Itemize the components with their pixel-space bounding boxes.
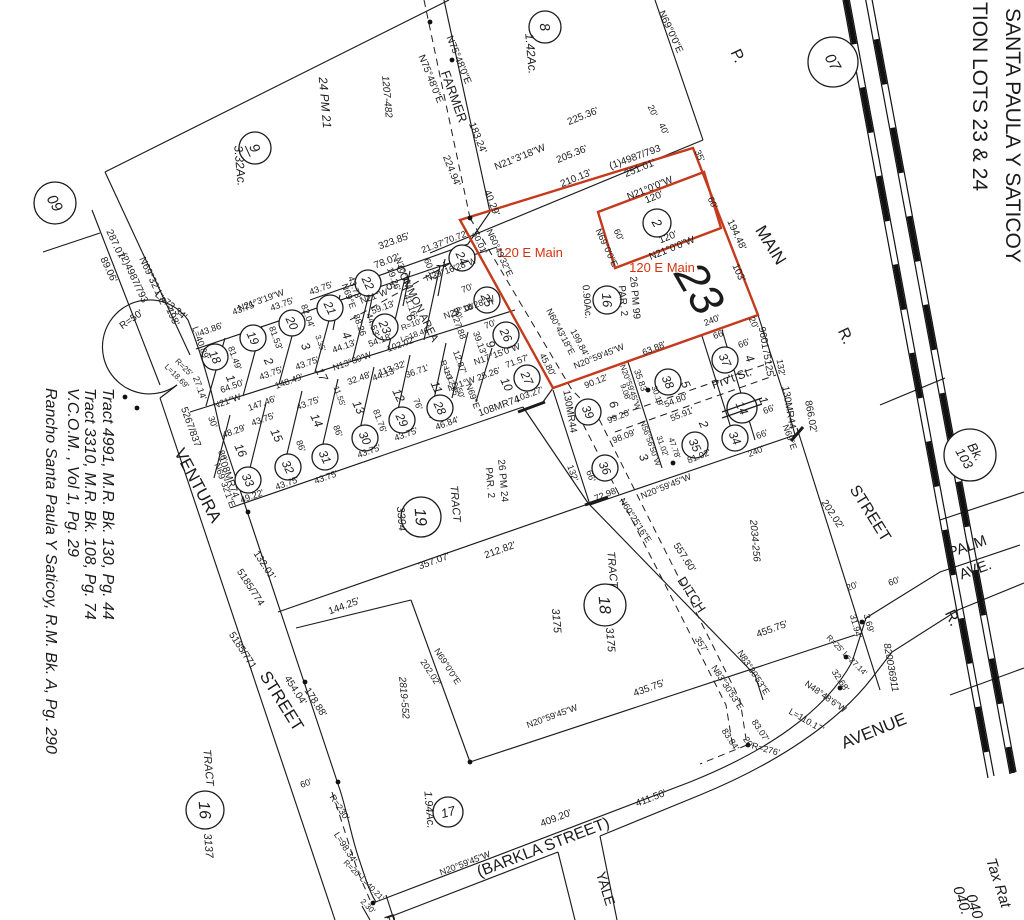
map-label: 63.88' [641,339,667,357]
map-label: 60' [299,776,314,790]
map-label: 1.94Ac. [421,791,436,829]
map-label: 6 [606,398,622,410]
map-label: 147.46' [247,393,278,412]
map-canvas: 9809072161819202122232425262728293031323… [0,0,1024,920]
parcel-circle: 39 [575,399,601,425]
map-label: N83°30'53"E [709,663,745,711]
map-label: 225.36' [566,105,600,127]
map-label: 205.36' [555,143,589,165]
map-label: 132.01' [251,549,278,582]
map-label: 202.02' [819,498,846,531]
map-label: 15 [267,426,285,444]
map-label: 4 [742,352,758,364]
map-label: 86' [294,439,308,454]
map-label: 20' [646,103,660,118]
map-label: 3 [298,340,314,352]
map-label: 40' [657,121,671,136]
map-label: 2 [260,354,276,367]
map-label: 76' [411,397,425,412]
parcel-circle: 19 [240,325,266,351]
map-label: 435.75' [632,678,666,699]
parcel-circle: 09 [34,182,76,224]
map-label: Rancho Santa Paula Y Saticoy, R.M. Bk. A… [42,388,59,754]
map-label: 44.13' [371,365,397,383]
map-label: 32.48' [346,369,372,387]
parcel-circle: 17 [433,797,463,827]
map-label: 866.02' [802,400,818,434]
map-label: 31.94' [848,613,864,639]
map-label: 48.29' [221,422,247,440]
map-label: 35' [693,148,707,163]
map-label: 83.84' [720,726,742,752]
map-label: Tract 3310, M.R. Bk. 108, Pg. 74 [81,388,98,620]
map-label: V.C.O.M. , Vol 1, Pg. 29 [64,388,81,557]
map-label: 960175125 [756,326,776,378]
map-label: 20' [845,579,860,593]
map-label: 120 E Main [629,260,695,275]
map-label: PALM [381,912,408,920]
map-label: R=276' [751,741,781,758]
map-label: 0.90Ac. [580,284,594,319]
map-label: 357.07' [417,551,451,572]
map-label: 90.12' [583,372,609,390]
map-label: 132' [775,358,788,376]
map-label: 21.37' [420,237,446,255]
parcel-circle: 21 [317,295,343,321]
map-label: Tract 4991, M.R. Bk. 130, Pg. 44 [99,388,116,620]
map-label: 3175 [603,627,617,653]
map-labels: SANTA PAULA Y SATICOYTION LOTS 23 & 24Tr… [42,2,1024,920]
map-label: Tax Rat [982,856,1014,911]
parcel-circle: 20 [279,310,305,336]
map-label: 26 PM 24 [495,459,510,503]
map-label: 24 PM 21 [316,75,335,128]
map-label: 2 [695,417,711,430]
map-label: 72.98' [593,485,619,503]
map-label: 43.75' [295,394,321,412]
lot-number-circles: 9809072161819202122232425262728293031323… [34,11,996,829]
parcel-circle-number: 16 [195,800,213,819]
map-label: 3.32Ac. [231,145,248,187]
map-label: N60°25'16"E [617,496,653,544]
parcel-circle: 31 [312,444,338,470]
map-label: 60' [887,574,902,588]
map-label: 66' [762,402,777,416]
map-label: N69°0'0"E [656,9,685,55]
map-label: 60' [612,227,626,242]
map-label: N21°W [212,391,243,410]
map-label: 11 [428,379,446,396]
map-label: 212.82' [483,540,517,561]
parcel-circle: 18 [584,584,626,626]
map-label: 3137 [201,833,215,859]
map-label: 183.24' [466,121,488,155]
parcel-circle: 34 [722,425,748,451]
map-label: 409.20' [539,808,573,830]
map-label: 455.75' [755,619,789,640]
map-label: R=20' L=40.21' [342,858,387,903]
map-label: R. [834,325,856,347]
map-label: 130MR44 [560,389,578,434]
map-label: 50' [454,387,466,400]
map-label: 66' [755,427,770,441]
map-label: 3.35' [313,334,327,354]
parcel-circle-number: 19 [411,507,429,526]
map-label: 43.75' [274,474,300,492]
map-label: 3.69' [862,613,877,634]
map-label: N20°59'45"W [639,471,693,501]
map-label: 81.49' [226,345,244,371]
parcel-circle: 07 [808,37,858,87]
map-label: L=110.17' [787,706,826,734]
map-label: 323.85' [377,231,411,252]
map-label: P. [727,47,748,66]
map-label: 2034-256 [747,518,762,562]
map-label: YALE [593,870,618,908]
map-label: TRACT [447,485,462,524]
map-label: 5185/774 [234,567,266,608]
map-label: 14 [307,411,325,429]
map-label: 70' [460,281,475,295]
map-label: 86' [331,424,345,439]
map-label: PAR. 2 [616,285,630,317]
map-label: 3175 [549,608,563,634]
map-label: TRACT [200,749,215,788]
map-label: 12.87' [451,349,469,375]
parcel-circle: 16 [186,791,224,829]
map-label: 27.14' [191,375,209,401]
map-label: N21°3'18"W [493,142,548,173]
map-label: 16 [231,441,249,459]
map-label: 55.91' [669,405,695,423]
map-label: SANTA PAULA Y SATICOY [1001,8,1024,263]
map-label: 66' [737,336,752,350]
map-label: STREET [846,482,894,545]
map-label: 98.09' [611,427,637,445]
map-label: 357' [693,635,711,655]
map-label: 13 [349,398,367,416]
map-label: 820036911 [881,642,900,692]
map-label: 224.94' [440,154,462,188]
map-label: 12 [389,386,407,404]
parcel-circle-number: 16 [599,292,615,308]
parcel-map: 9809072161819202122232425262728293031323… [0,0,1024,920]
map-label: 5185/771 [226,630,258,671]
map-label: 411.50' [634,788,668,810]
map-label: 1207-482 [379,75,394,118]
map-label: 60' [706,195,720,210]
map-label: 70.72' [443,228,469,246]
map-label: 1.42Ac. [522,33,539,75]
map-label: 10 [497,375,515,393]
map-label: N20°59'45"W [525,702,579,730]
map-label: MAIN [751,222,790,268]
map-label: 144.25' [327,596,361,617]
map-label: TION LOTS 23 & 24 [968,2,991,191]
map-label: 3 [636,451,652,463]
parcel-circle-number: 18 [595,595,613,614]
parcel-circle: Bk.103 [944,429,996,481]
map-label: 210.13' [559,167,593,189]
map-label: R=230' [328,793,352,823]
map-label: 040. [962,892,987,920]
map-label: PAR. 2 [483,467,497,499]
map-label: 43.75' [313,468,339,486]
map-label: 43.75' [250,410,276,428]
map-label: 240' [702,312,722,328]
map-label: 2819-552 [396,675,411,719]
map-label: 5267/837 [178,406,203,449]
map-label: 3394 [394,506,408,531]
map-label: AVENUE [839,709,910,752]
